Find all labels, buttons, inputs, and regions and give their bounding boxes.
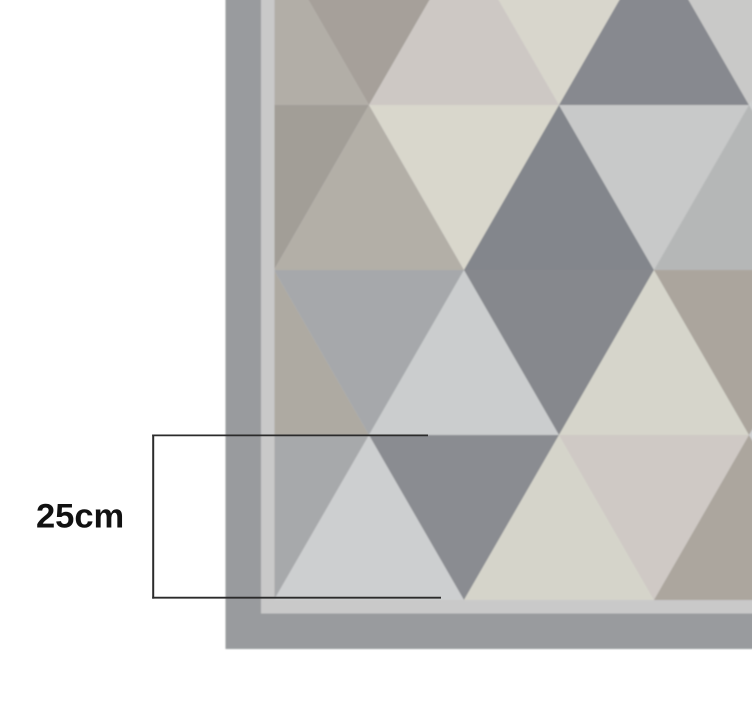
svg-text:25cm: 25cm [36, 497, 124, 535]
